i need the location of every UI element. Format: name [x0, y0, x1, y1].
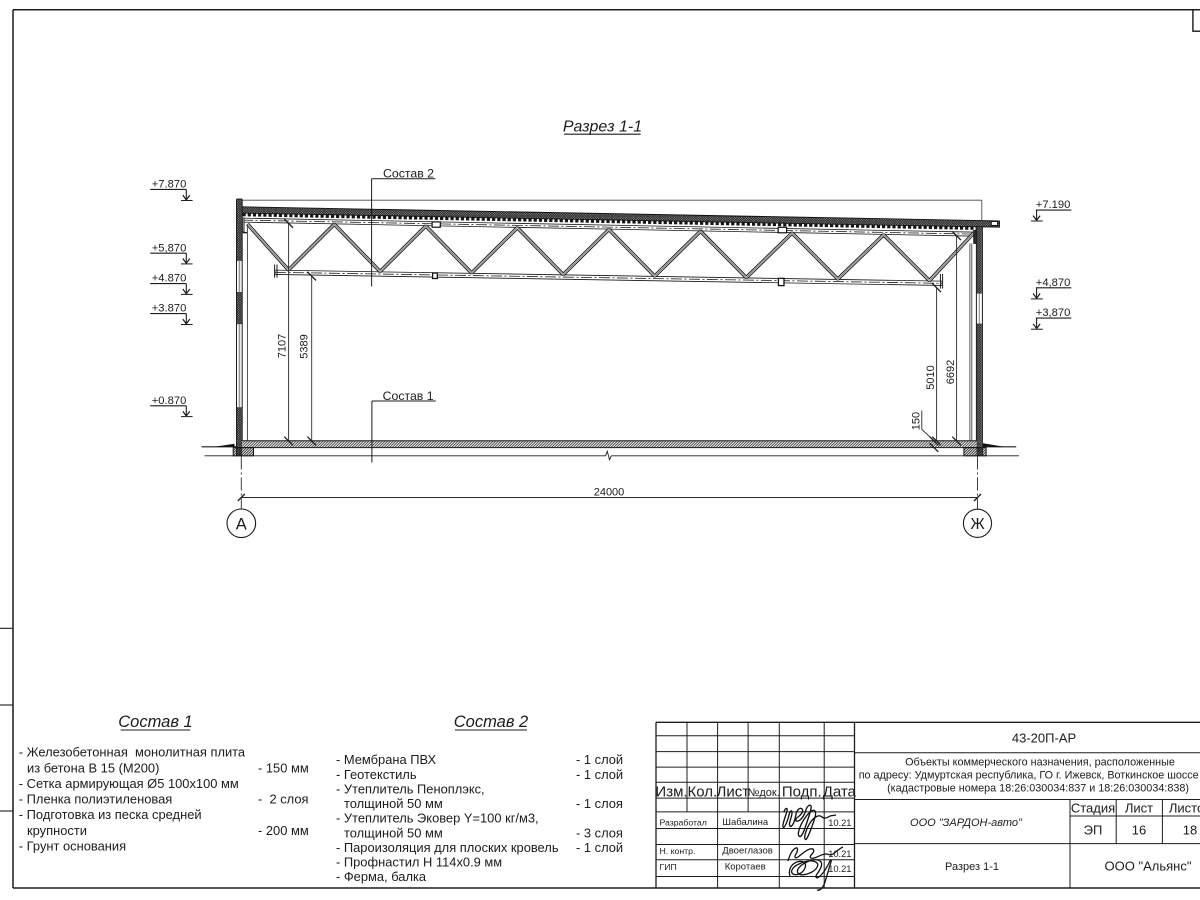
svg-text:- Подготовка из песка средней: - Подготовка из песка средней [19, 807, 202, 822]
svg-text:толщиной 50 мм: толщиной 50 мм [344, 796, 443, 811]
svg-text:5389: 5389 [299, 334, 311, 358]
svg-text:Стадия: Стадия [1071, 801, 1115, 816]
svg-text:+0.870: +0.870 [152, 395, 187, 407]
svg-text:+3.870: +3.870 [152, 303, 187, 315]
svg-text:- Пароизоляция для плоских кро: - Пароизоляция для плоских кровель [336, 840, 559, 855]
svg-text:- 1 слой: - 1 слой [576, 752, 623, 767]
svg-text:Двоеглазов: Двоеглазов [722, 846, 773, 857]
svg-text:Разработал: Разработал [660, 818, 707, 828]
svg-text:24000: 24000 [594, 486, 625, 498]
svg-text:Состав 1: Состав 1 [118, 713, 192, 731]
svg-text:Кол.: Кол. [687, 784, 717, 801]
svg-text:7107: 7107 [276, 334, 288, 358]
svg-text:- Пленка полиэтиленовая: - Пленка полиэтиленовая [19, 792, 172, 807]
svg-text:- Ферма, балка: - Ферма, балка [336, 869, 427, 884]
svg-text:Объекты коммерческого назначен: Объекты коммерческого назначения, распол… [905, 756, 1175, 768]
svg-text:+5,870: +5,870 [152, 242, 187, 254]
svg-text:16: 16 [1132, 823, 1146, 838]
svg-text:Н. контр.: Н. контр. [660, 846, 696, 856]
svg-text:+4.870: +4.870 [152, 273, 187, 285]
svg-text:- 1 слоя: - 1 слоя [576, 796, 623, 811]
svg-text:- Утеплитель Пеноплэкс,: - Утеплитель Пеноплэкс, [336, 781, 485, 796]
svg-text:- 1 слой: - 1 слой [576, 767, 623, 782]
svg-text:+4,870: +4,870 [1036, 277, 1071, 289]
svg-text:Разрез 1-1: Разрез 1-1 [945, 861, 999, 873]
svg-text:Ж: Ж [970, 516, 985, 533]
svg-text:(кадастровые номера 18:26:0300: (кадастровые номера 18:26:030034:837 и 1… [887, 783, 1189, 795]
svg-text:Шабалина: Шабалина [722, 817, 769, 828]
svg-text:10.21: 10.21 [828, 818, 851, 828]
svg-text:- Сетка армирующая Ø5 100x100: - Сетка армирующая Ø5 100x100 мм [19, 776, 239, 791]
svg-text:№док.: №док. [748, 787, 780, 799]
svg-text:- Геотекстиль: - Геотекстиль [336, 767, 417, 782]
svg-text:150: 150 [911, 412, 923, 430]
svg-text:10.21: 10.21 [828, 849, 851, 859]
svg-text:+3,870: +3,870 [1036, 307, 1071, 319]
svg-text:ГИП: ГИП [660, 862, 677, 872]
svg-text:10.21: 10.21 [828, 864, 851, 874]
svg-text:5010: 5010 [925, 365, 937, 389]
svg-text:Лист: Лист [1125, 801, 1153, 816]
svg-text:Разрез 1-1: Разрез 1-1 [563, 119, 642, 136]
svg-text:- Железобетонная монолитная п: - Железобетонная монолитная плита [19, 745, 246, 760]
svg-text:ООО "ЗАРДОН-авто": ООО "ЗАРДОН-авто" [910, 817, 1023, 829]
svg-text:- 2 слоя: - 2 слоя [258, 792, 308, 807]
svg-text:Дата: Дата [823, 784, 857, 801]
svg-text:Листов: Листов [1169, 801, 1200, 816]
svg-text:Изм.: Изм. [655, 784, 687, 801]
svg-text:- Мембрана ПВХ: - Мембрана ПВХ [336, 752, 437, 767]
svg-text:- 150 мм: - 150 мм [258, 760, 309, 775]
svg-text:- 200 мм: - 200 мм [258, 823, 309, 838]
svg-text:Коротаев: Коротаев [725, 862, 766, 873]
svg-text:Лист: Лист [717, 784, 750, 801]
svg-text:- Грунт основания: - Грунт основания [19, 839, 126, 854]
svg-text:крупности: крупности [27, 823, 87, 838]
svg-text:43-20П-АР: 43-20П-АР [1012, 731, 1076, 746]
svg-text:из бетона В 15 (М200): из бетона В 15 (М200) [27, 760, 159, 775]
svg-text:ООО "Альянс": ООО "Альянс" [1105, 858, 1192, 873]
svg-text:ЭП: ЭП [1084, 823, 1103, 838]
svg-text:+7.870: +7.870 [152, 179, 187, 191]
svg-text:18: 18 [1183, 823, 1197, 838]
svg-text:А: А [236, 515, 247, 533]
svg-text:- Утеплитель Эковер Y=100 кг/м: - Утеплитель Эковер Y=100 кг/м3, [336, 811, 539, 826]
svg-text:+7.190: +7.190 [1036, 199, 1071, 211]
svg-text:толщиной 50 мм: толщиной 50 мм [344, 825, 443, 840]
svg-text:- Профнастил Н 114х0.9 мм: - Профнастил Н 114х0.9 мм [336, 855, 502, 870]
svg-text:по адресу: Удмуртская республи: по адресу: Удмуртская республика, ГО г. … [859, 770, 1199, 782]
svg-text:- 3 слоя: - 3 слоя [576, 825, 623, 840]
svg-text:- 1 слой: - 1 слой [576, 840, 623, 855]
svg-text:Состав 2: Состав 2 [454, 713, 528, 731]
svg-text:6692: 6692 [945, 360, 957, 384]
svg-text:Подп.: Подп. [782, 784, 822, 801]
